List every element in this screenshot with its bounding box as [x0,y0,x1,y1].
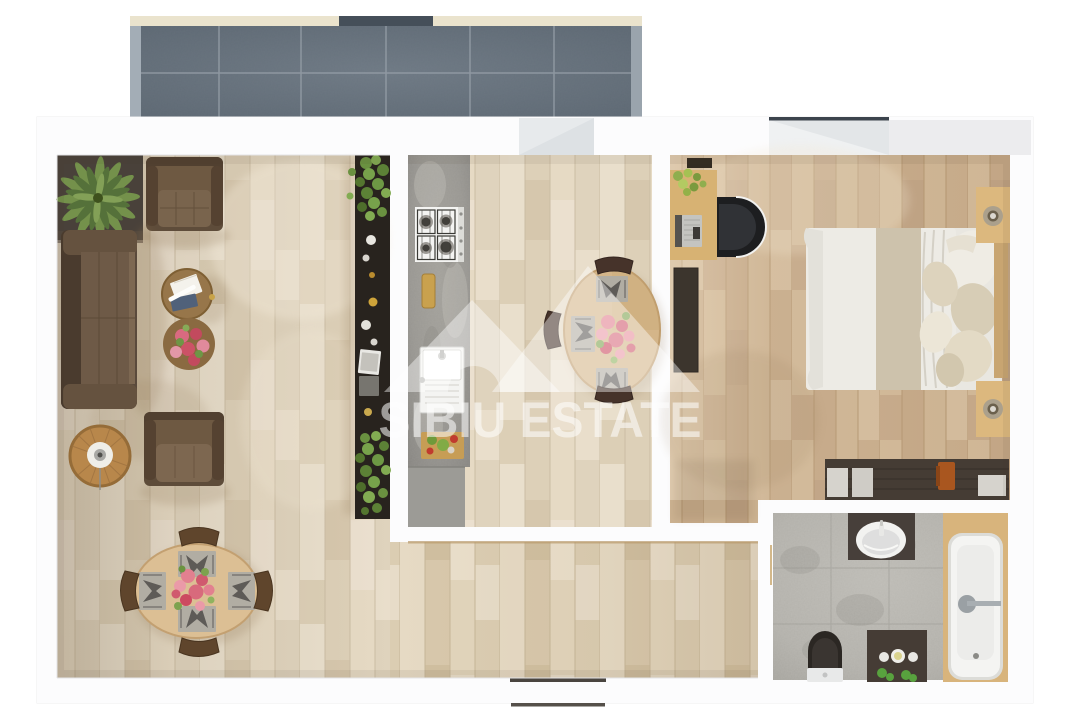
svg-text:SIBIU ESTATE: SIBIU ESTATE [379,392,702,448]
